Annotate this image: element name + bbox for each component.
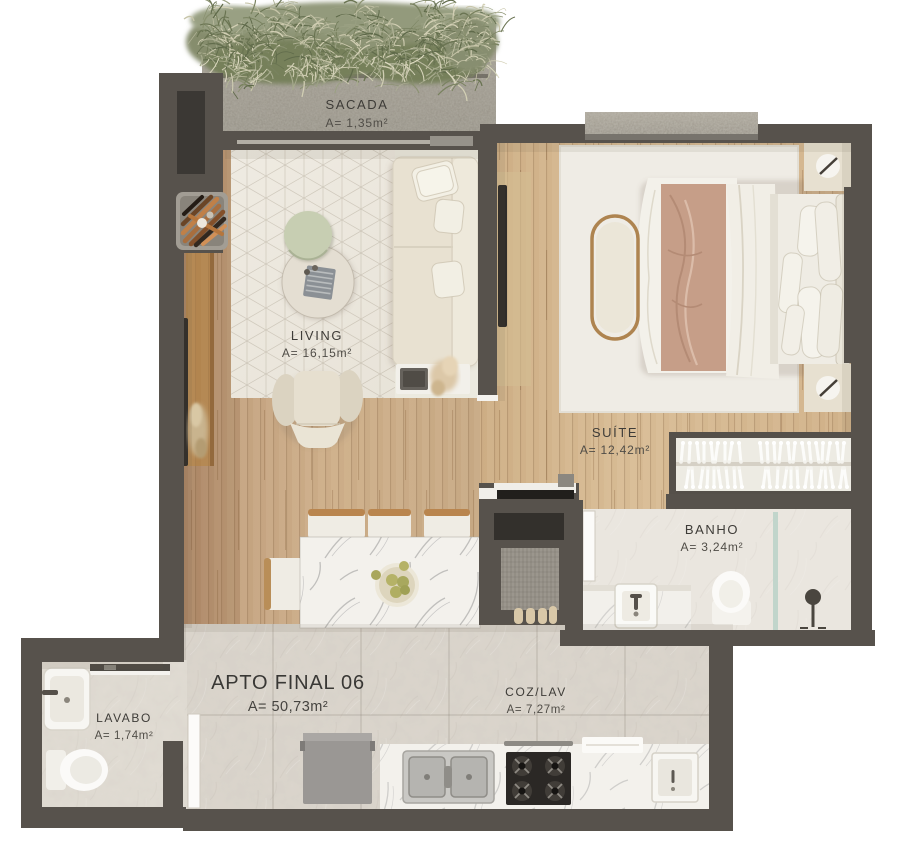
svg-text:A= 16,15m²: A= 16,15m²: [282, 346, 352, 360]
svg-text:A= 7,27m²: A= 7,27m²: [507, 704, 566, 716]
svg-text:SUÍTE: SUÍTE: [592, 425, 638, 440]
svg-text:SACADA: SACADA: [325, 97, 388, 112]
svg-text:A= 1,35m²: A= 1,35m²: [326, 116, 389, 130]
svg-text:COZ/LAV: COZ/LAV: [505, 685, 567, 699]
svg-text:LIVING: LIVING: [291, 328, 343, 343]
svg-text:A= 3,24m²: A= 3,24m²: [681, 540, 744, 554]
svg-text:A= 1,74m²: A= 1,74m²: [95, 730, 154, 742]
svg-text:LAVABO: LAVABO: [96, 711, 152, 725]
svg-text:A= 12,42m²: A= 12,42m²: [580, 443, 650, 457]
svg-text:BANHO: BANHO: [685, 522, 739, 537]
svg-text:A= 50,73m²: A= 50,73m²: [248, 699, 328, 715]
svg-text:APTO FINAL 06: APTO FINAL 06: [211, 672, 365, 694]
